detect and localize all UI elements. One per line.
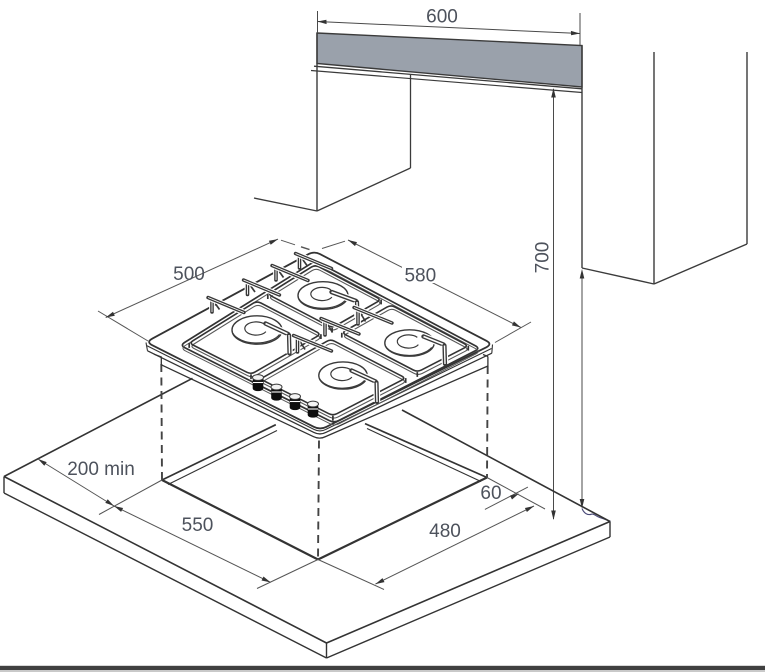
svg-text:700: 700 (533, 242, 554, 274)
svg-text:550: 550 (182, 515, 214, 536)
svg-text:600: 600 (426, 7, 458, 28)
svg-text:500: 500 (173, 264, 205, 285)
svg-text:200 min: 200 min (67, 459, 135, 480)
svg-text:480: 480 (429, 521, 461, 542)
svg-text:580: 580 (404, 266, 436, 287)
svg-text:60: 60 (480, 483, 501, 504)
